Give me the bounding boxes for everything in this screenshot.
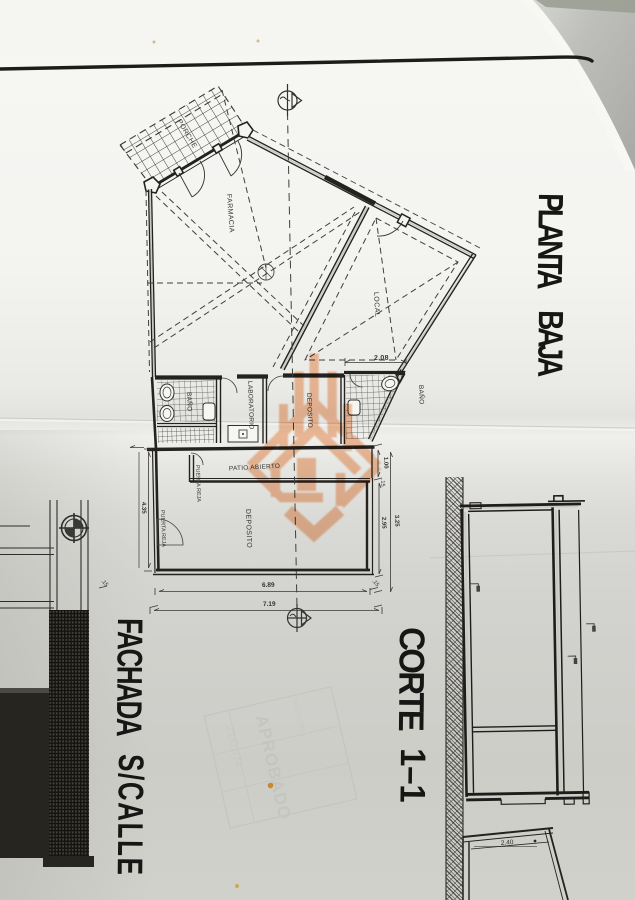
svg-text:1–1: 1–1 [392, 748, 432, 803]
svg-text:2.40: 2.40 [501, 839, 515, 847]
svg-text:PLANTA: PLANTA [530, 193, 571, 290]
svg-text:LOCAL: LOCAL [372, 292, 380, 318]
svg-text:3.25: 3.25 [393, 515, 400, 528]
svg-text:2.08: 2.08 [374, 355, 389, 362]
svg-text:BAJA: BAJA [530, 310, 571, 378]
svg-text:6.89: 6.89 [262, 582, 275, 589]
svg-text:1.00: 1.00 [382, 457, 389, 470]
svg-text:.15: .15 [379, 479, 385, 487]
svg-text:7.19: 7.19 [263, 601, 276, 608]
svg-text:2.95: 2.95 [380, 517, 387, 530]
svg-text:FACHADA: FACHADA [109, 618, 150, 737]
svg-text:4.35: 4.35 [140, 502, 146, 515]
svg-text:DEPOSITO: DEPOSITO [244, 509, 252, 549]
svg-text:CORTE: CORTE [391, 627, 432, 731]
svg-text:S/CALLE: S/CALLE [110, 754, 151, 877]
